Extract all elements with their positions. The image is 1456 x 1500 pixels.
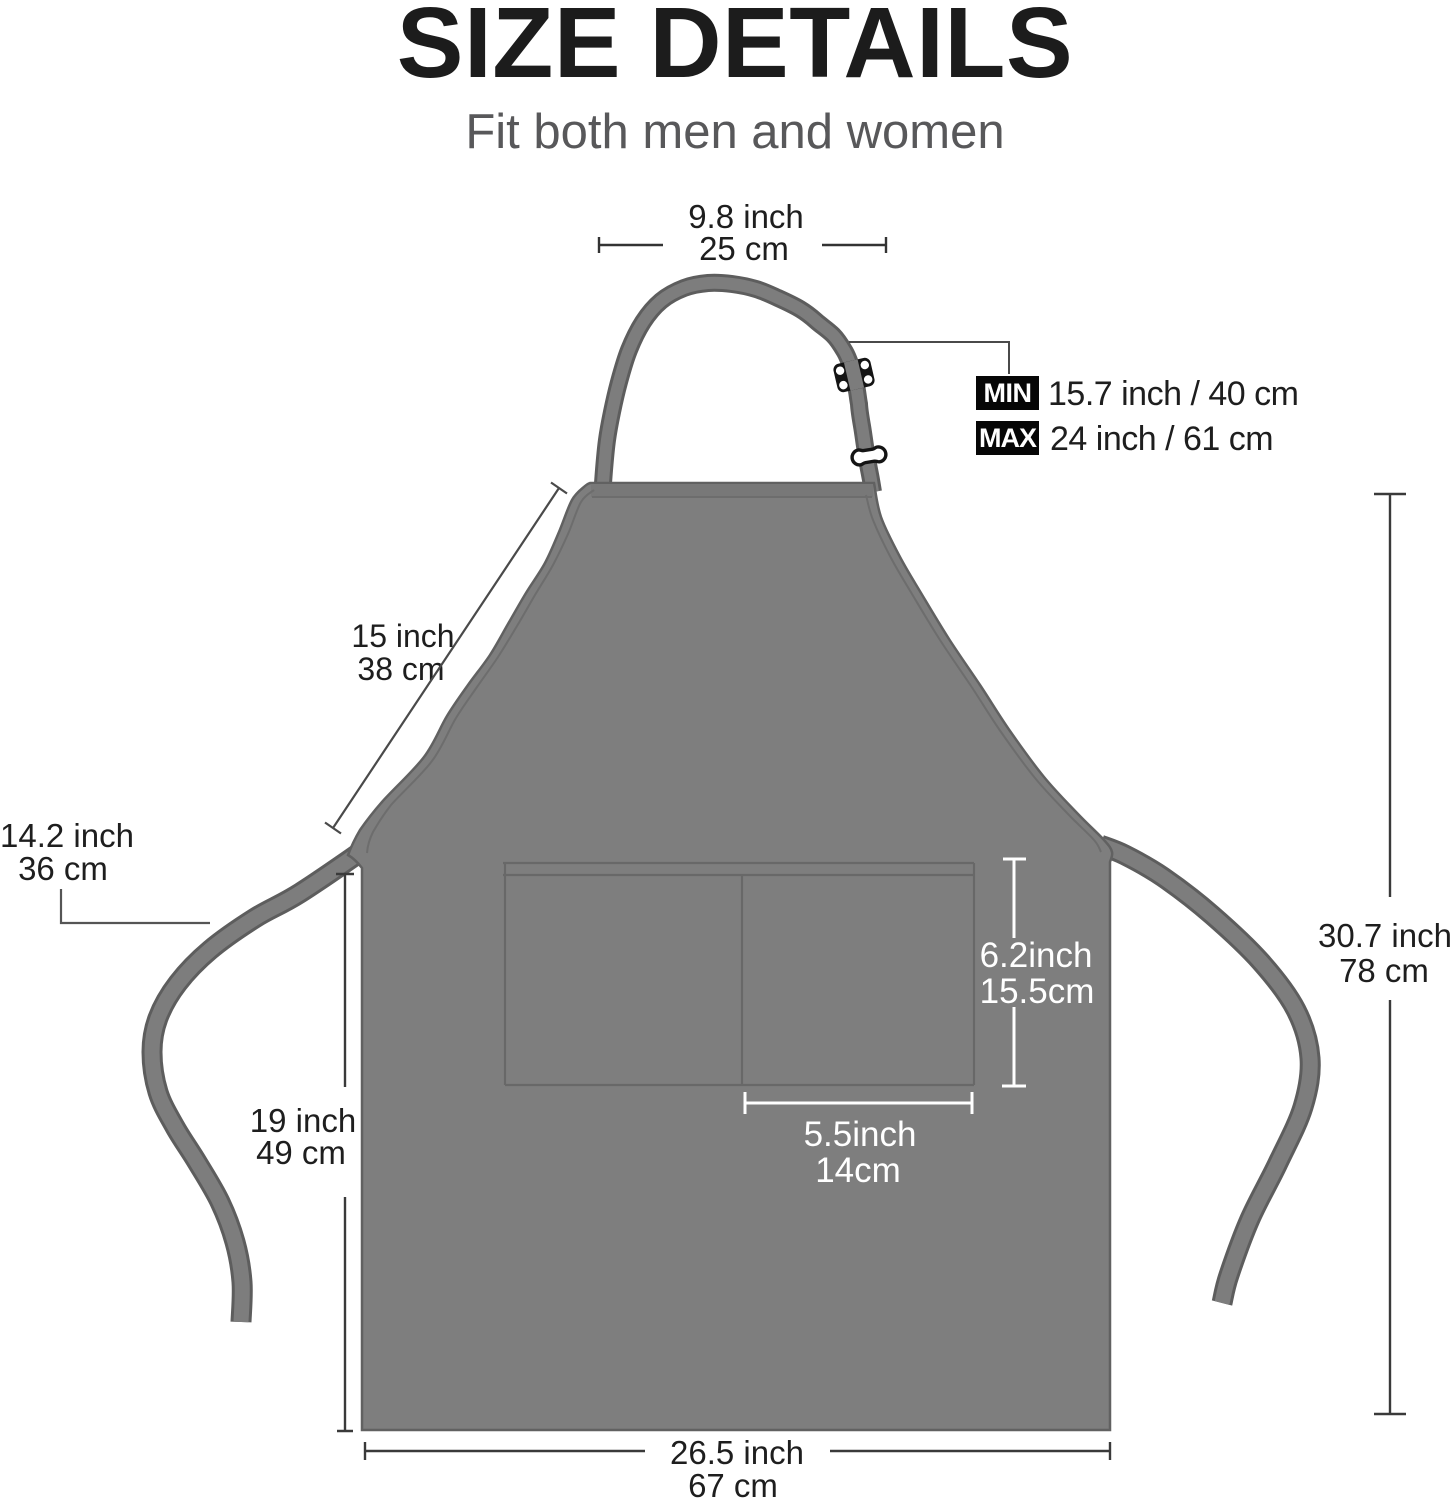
- svg-text:SIZE DETAILS: SIZE DETAILS: [397, 0, 1073, 99]
- svg-text:36 cm: 36 cm: [18, 850, 108, 887]
- svg-text:15.7 inch / 40 cm: 15.7 inch / 40 cm: [1048, 375, 1298, 413]
- svg-text:15 inch: 15 inch: [351, 618, 454, 654]
- svg-text:15.5cm: 15.5cm: [980, 972, 1095, 1011]
- svg-text:26.5 inch: 26.5 inch: [670, 1434, 804, 1471]
- svg-text:49 cm: 49 cm: [256, 1134, 346, 1171]
- svg-text:78 cm: 78 cm: [1339, 952, 1429, 989]
- svg-text:MIN: MIN: [984, 378, 1032, 408]
- svg-text:MAX: MAX: [979, 423, 1037, 453]
- svg-text:6.2inch: 6.2inch: [980, 936, 1093, 975]
- svg-text:5.5inch: 5.5inch: [804, 1115, 917, 1154]
- svg-text:67 cm: 67 cm: [688, 1467, 778, 1500]
- svg-text:30.7 inch: 30.7 inch: [1318, 917, 1452, 954]
- svg-text:14.2 inch: 14.2 inch: [0, 817, 134, 854]
- svg-text:Fit both men and women: Fit both men and women: [465, 105, 1004, 159]
- svg-text:14cm: 14cm: [815, 1151, 901, 1190]
- svg-text:24 inch / 61 cm: 24 inch / 61 cm: [1050, 420, 1273, 458]
- svg-text:25 cm: 25 cm: [699, 230, 789, 267]
